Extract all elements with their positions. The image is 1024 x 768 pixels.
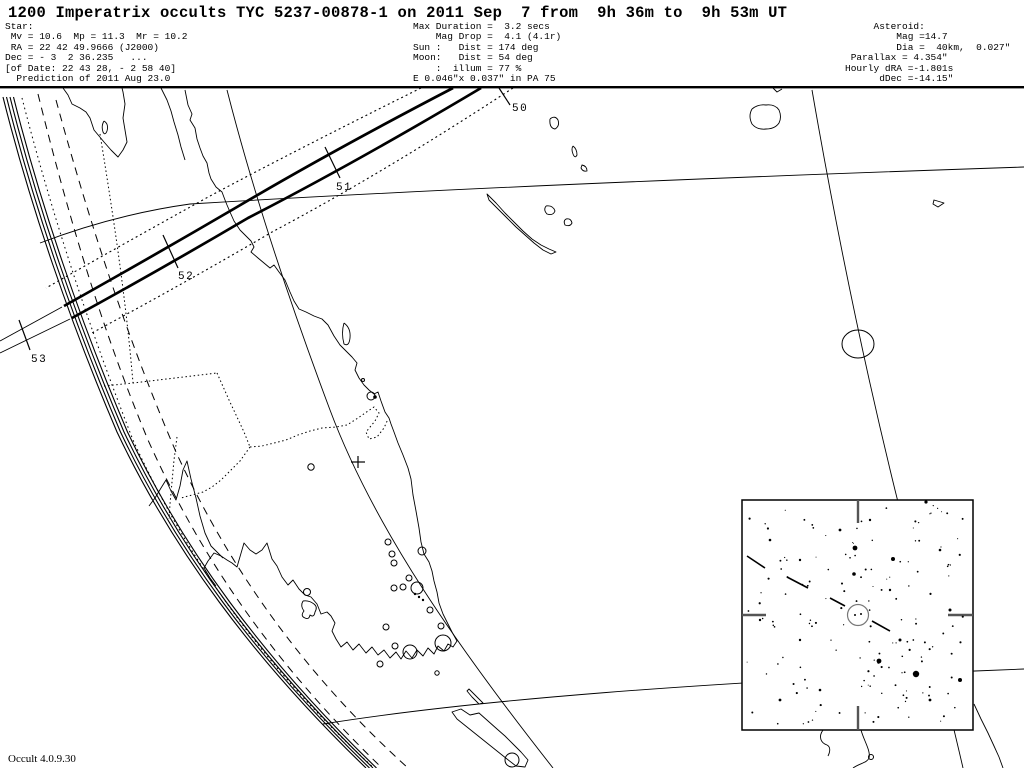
state-border: [250, 407, 388, 447]
site-circle-marker: [400, 584, 406, 590]
field-star: [845, 554, 847, 556]
field-star: [905, 701, 906, 702]
field-star: [924, 500, 927, 503]
field-star: [948, 575, 949, 576]
field-star: [751, 712, 753, 714]
coastline: [467, 689, 483, 704]
coastline: [102, 121, 107, 134]
field-star: [906, 641, 908, 643]
field-star: [928, 695, 930, 697]
field-star: [957, 538, 958, 539]
field-star: [913, 671, 919, 677]
field-star: [787, 576, 789, 578]
site-circle-marker: [377, 661, 383, 667]
field-star: [891, 557, 895, 561]
site-dot-marker: [422, 599, 424, 601]
field-star: [810, 620, 811, 621]
field-star: [892, 642, 893, 643]
coastline: [853, 730, 869, 768]
field-star: [860, 576, 862, 578]
field-star: [873, 675, 875, 677]
field-star: [922, 692, 923, 693]
site-circle-marker: [406, 575, 412, 581]
field-star: [800, 667, 802, 669]
field-star: [849, 557, 851, 559]
field-star: [885, 507, 887, 509]
limit-dashed-line: [56, 100, 408, 768]
site-dot-marker: [414, 593, 416, 595]
field-star: [881, 589, 883, 591]
path-minute-label: 51: [336, 182, 352, 194]
path-edge-line: [72, 88, 481, 318]
field-star: [871, 569, 873, 571]
field-star: [899, 561, 901, 563]
path-extension-line: [0, 319, 70, 353]
field-star: [799, 559, 801, 561]
field-star: [803, 519, 805, 521]
field-star: [901, 619, 902, 620]
site-circle-marker: [389, 551, 395, 557]
field-star: [918, 522, 919, 523]
field-star: [747, 662, 748, 663]
field-star: [914, 520, 916, 522]
coastline: [161, 88, 185, 160]
field-star: [921, 656, 922, 657]
field-star: [856, 528, 858, 530]
site-circle-marker: [418, 547, 426, 555]
field-star: [802, 584, 804, 586]
field-star: [915, 618, 916, 619]
field-star: [901, 672, 902, 673]
field-star: [782, 657, 783, 658]
site-ellipse-marker: [842, 330, 874, 358]
field-star: [913, 527, 914, 528]
field-star: [825, 598, 826, 599]
field-star: [897, 707, 899, 709]
field-star: [946, 512, 948, 514]
field-star: [835, 649, 836, 650]
field-star: [777, 723, 779, 725]
coastline: [933, 200, 944, 207]
field-star: [773, 625, 775, 627]
site-circle-marker: [435, 635, 451, 651]
limit-dashed-line: [38, 94, 382, 768]
field-star: [863, 680, 864, 681]
site-circle-marker: [427, 607, 433, 613]
field-star: [908, 561, 909, 562]
field-star: [942, 633, 944, 635]
field-star: [874, 660, 875, 661]
site-circle-marker: [411, 582, 423, 594]
field-star: [943, 715, 945, 717]
coastline: [974, 704, 1003, 768]
field-star: [852, 572, 856, 576]
field-star: [853, 543, 854, 544]
field-star: [962, 616, 964, 618]
field-star: [939, 549, 942, 552]
site-circle-marker: [438, 623, 444, 629]
site-dot-marker: [373, 395, 377, 399]
site-circle-marker: [391, 560, 397, 566]
field-star: [811, 524, 813, 526]
field-star: [749, 518, 751, 520]
field-star: [859, 657, 860, 658]
path-edge-line: [64, 88, 453, 306]
field-star: [918, 540, 920, 542]
coastline: [750, 105, 781, 129]
coastline: [572, 146, 577, 157]
field-star: [937, 508, 938, 509]
site-circle-marker: [383, 624, 389, 630]
field-star: [819, 689, 822, 692]
coastline: [487, 194, 556, 254]
site-circle-marker: [435, 671, 439, 675]
path-minute-tick: [19, 320, 30, 350]
field-star: [762, 618, 764, 620]
field-star: [785, 510, 786, 511]
state-border: [217, 373, 250, 447]
star-info-block: Star: Mv = 10.6 Mp = 11.3 Mr = 10.2 RA =…: [5, 22, 187, 84]
field-star: [760, 592, 761, 593]
field-star: [872, 540, 873, 541]
field-star: [929, 648, 931, 650]
coastline: [452, 709, 528, 767]
field-star: [784, 557, 785, 558]
field-star: [868, 600, 869, 601]
field-star: [843, 590, 845, 592]
field-star: [903, 694, 905, 696]
field-star: [869, 609, 871, 611]
target-star-dot: [854, 614, 856, 616]
coastline: [820, 730, 829, 756]
field-star: [889, 577, 890, 578]
field-star: [868, 685, 869, 686]
field-star: [948, 564, 950, 566]
field-star: [759, 619, 761, 621]
site-circle-marker: [391, 585, 397, 591]
field-star: [947, 693, 949, 695]
field-star: [768, 578, 770, 580]
field-star: [766, 673, 767, 674]
field-star: [912, 639, 914, 641]
field-star: [804, 679, 806, 681]
map-top-border: [0, 86, 1024, 88]
target-star-dot: [860, 613, 862, 615]
field-star: [843, 624, 844, 625]
field-star: [895, 598, 897, 600]
field-star: [870, 625, 872, 627]
field-star: [759, 602, 761, 604]
field-star: [950, 564, 951, 565]
coastline: [343, 323, 351, 345]
field-star: [909, 649, 911, 651]
field-star: [861, 521, 863, 523]
coastline: [773, 88, 782, 92]
field-star: [772, 621, 774, 623]
field-star: [901, 656, 902, 657]
path-error-limit: [90, 88, 513, 334]
field-star: [808, 721, 810, 723]
path-minute-label: 50: [512, 103, 528, 115]
field-star: [852, 542, 853, 543]
field-star: [816, 557, 817, 558]
site-circle-marker: [304, 589, 311, 596]
field-star: [921, 660, 923, 662]
coastline: [302, 601, 317, 619]
site-circle-marker: [362, 379, 365, 382]
field-star: [807, 585, 809, 587]
coastline: [564, 219, 572, 226]
field-star: [853, 546, 858, 551]
field-star: [839, 529, 842, 532]
site-dot-marker: [418, 596, 420, 598]
site-circle-marker: [308, 464, 314, 470]
field-star: [811, 625, 813, 627]
path-minute-label: 53: [31, 354, 47, 366]
field-star: [908, 717, 909, 718]
field-star: [779, 699, 782, 702]
field-star: [841, 582, 843, 584]
site-circle-marker: [505, 753, 519, 767]
earth-limb-line: [14, 97, 377, 768]
field-star: [940, 721, 941, 722]
field-star: [915, 623, 917, 625]
field-star: [877, 662, 879, 664]
field-star: [800, 613, 802, 615]
field-star: [803, 723, 804, 724]
field-star: [917, 571, 919, 573]
asteroid-info-block: Asteroid: Mag =14.7 Dia = 40km, 0.027" P…: [845, 22, 1010, 84]
site-circle-marker: [392, 643, 398, 649]
field-star: [793, 683, 795, 685]
field-star: [780, 568, 782, 570]
field-star: [867, 670, 869, 672]
field-star: [881, 666, 883, 668]
field-star: [959, 641, 961, 643]
field-star: [812, 527, 814, 529]
field-star: [830, 639, 831, 640]
coastline: [63, 88, 127, 157]
field-star: [872, 721, 874, 723]
field-star: [908, 585, 909, 586]
field-star: [906, 690, 907, 691]
field-star: [929, 699, 932, 702]
version-label: Occult 4.0.9.30: [8, 753, 76, 765]
field-star: [906, 697, 908, 699]
field-star: [785, 593, 787, 595]
field-star: [815, 622, 817, 624]
state-border: [104, 373, 217, 386]
field-star: [779, 560, 781, 562]
field-star: [869, 519, 871, 521]
path-error-limit: [46, 88, 421, 288]
field-star: [815, 711, 816, 712]
coastline: [185, 90, 457, 659]
field-star: [777, 663, 779, 665]
coastline: [550, 117, 559, 129]
field-star: [796, 692, 798, 694]
field-star: [933, 505, 934, 506]
field-star: [889, 589, 891, 591]
field-star: [881, 693, 882, 694]
state-border: [169, 437, 177, 519]
field-star: [924, 641, 926, 643]
field-star: [932, 646, 933, 647]
field-star: [872, 586, 873, 587]
field-star: [915, 540, 916, 541]
field-star: [962, 518, 964, 520]
field-star: [929, 686, 931, 688]
path-extension-line: [0, 307, 62, 341]
state-border: [100, 134, 133, 383]
earth-limb-line: [3, 97, 366, 768]
field-star: [868, 641, 870, 643]
earth-limb-line: [7, 97, 370, 768]
field-star: [767, 527, 769, 529]
field-star: [929, 513, 930, 514]
field-star: [809, 580, 811, 582]
field-star: [951, 677, 953, 679]
earth-limb-line: [10, 97, 373, 768]
grid-line: [227, 90, 553, 768]
field-star: [940, 546, 941, 547]
occultation-map: 50515253: [0, 0, 1024, 768]
occult-prediction-window: 50515253 1200 Imperatrix occults TYC 523…: [0, 0, 1024, 768]
field-star: [769, 539, 772, 542]
field-star: [827, 569, 829, 571]
path-minute-label: 52: [178, 271, 194, 283]
site-circle-marker: [385, 539, 391, 545]
field-star: [865, 568, 867, 570]
field-star: [865, 712, 866, 713]
field-star: [809, 623, 810, 624]
field-star: [812, 719, 813, 720]
field-star: [930, 513, 931, 514]
field-star: [886, 579, 887, 580]
coastline: [581, 165, 587, 171]
field-star: [861, 686, 862, 687]
grid-line: [40, 167, 1024, 243]
field-star: [825, 535, 826, 536]
field-star: [951, 653, 953, 655]
finder-chart-inset: [742, 500, 973, 730]
field-star: [774, 626, 776, 628]
field-star: [904, 671, 906, 673]
limit-dotted-line: [22, 98, 374, 768]
field-star: [954, 707, 956, 709]
field-star: [899, 639, 902, 642]
field-star: [941, 511, 942, 512]
field-star: [958, 678, 962, 682]
field-star: [888, 667, 890, 669]
coastline: [545, 206, 555, 215]
field-star: [878, 653, 880, 655]
field-star: [764, 523, 765, 524]
field-star: [806, 687, 808, 689]
field-star: [786, 559, 788, 561]
field-star: [839, 712, 841, 714]
field-star: [877, 716, 879, 718]
field-star: [929, 593, 931, 595]
state-border: [181, 447, 250, 498]
event-info-block: Max Duration = 3.2 secs Mag Drop = 4.1 (…: [413, 22, 561, 84]
field-star: [949, 609, 952, 612]
field-star: [959, 554, 961, 556]
field-star: [748, 610, 750, 612]
field-star: [799, 639, 801, 641]
field-star: [952, 625, 954, 627]
field-star: [947, 566, 949, 568]
field-star: [856, 600, 858, 602]
field-star: [896, 642, 897, 643]
field-star: [840, 607, 842, 609]
field-star: [820, 704, 822, 706]
field-star: [895, 684, 897, 686]
field-star: [854, 555, 856, 557]
event-title: 1200 Imperatrix occults TYC 5237-00878-1…: [8, 4, 787, 22]
field-star: [869, 685, 871, 687]
